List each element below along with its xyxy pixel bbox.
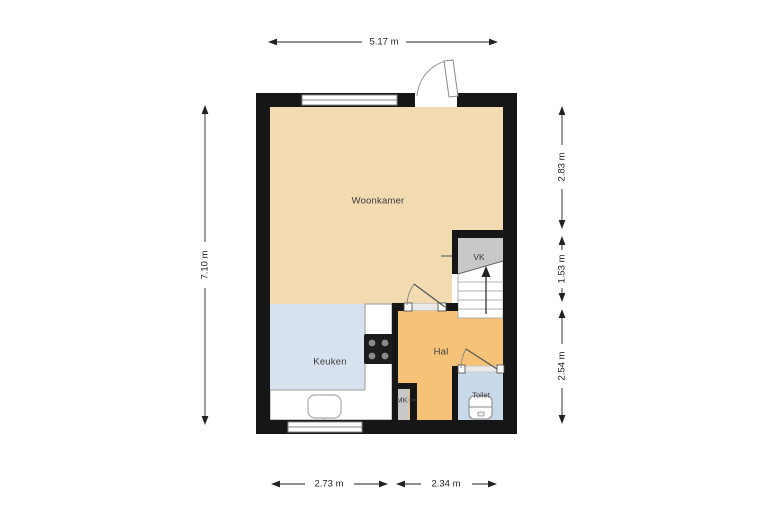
wall-vk-top xyxy=(452,230,503,238)
dim-label-right-middle: 1.53 m xyxy=(557,254,568,283)
wall-mk-right xyxy=(410,383,417,420)
dim-label-bottom-left: 2.73 m xyxy=(314,479,343,490)
floorplan-canvas: Woonkamer Keuken Hal VK MK Toilet 5.17 m… xyxy=(0,0,768,527)
wall-right xyxy=(503,93,517,434)
top-window-icon xyxy=(302,95,397,105)
cooktop-icon xyxy=(364,334,393,364)
dim-label-top-width: 5.17 m xyxy=(369,37,398,48)
wall-hal-top-right xyxy=(446,303,458,311)
room-label-mk: MK xyxy=(396,396,407,405)
dim-label-right-lower: 2.54 m xyxy=(557,351,568,380)
wall-toilet-left xyxy=(452,366,458,420)
room-mk xyxy=(397,389,409,420)
bottom-window-icon xyxy=(288,422,362,432)
dim-label-left-height: 7.10 m xyxy=(200,250,211,279)
room-label-hal: Hal xyxy=(434,347,449,358)
room-label-vk: VK xyxy=(473,252,485,262)
room-label-keuken: Keuken xyxy=(313,357,346,368)
wall-vk-left xyxy=(452,230,458,274)
entrance-door-icon xyxy=(415,60,458,107)
floorplan-drawing: Woonkamer Keuken Hal VK MK Toilet 5.17 m… xyxy=(0,0,768,527)
dim-label-bottom-right: 2.34 m xyxy=(431,479,460,490)
room-label-woonkamer: Woonkamer xyxy=(352,196,405,207)
dim-label-right-upper: 2.83 m xyxy=(557,152,568,181)
room-label-toilet: Toilet xyxy=(472,391,490,400)
wall-left xyxy=(256,93,270,434)
